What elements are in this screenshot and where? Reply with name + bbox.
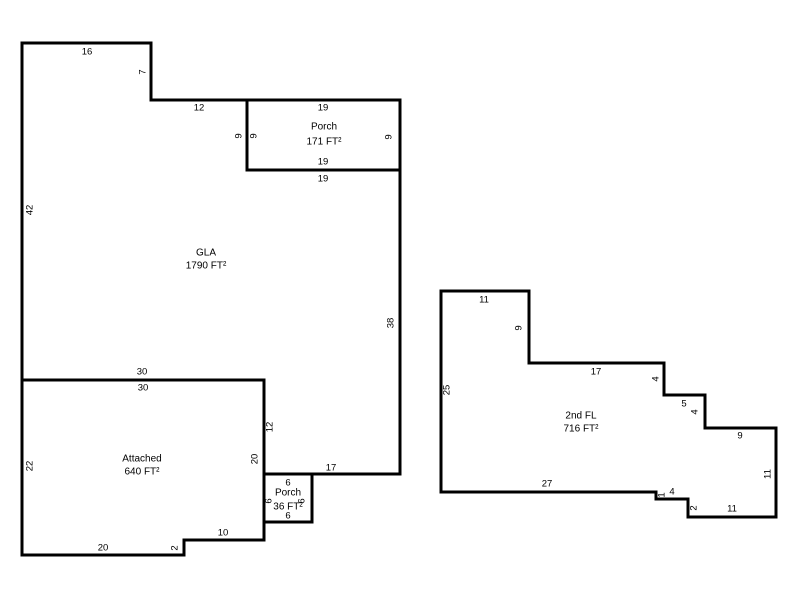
gla-dimension-label: 17 xyxy=(326,463,337,474)
porch-lower-dimension-label: 6 xyxy=(285,478,290,489)
second-floor-dimension-label: 2 xyxy=(689,505,700,510)
second-floor-dimension-label: 25 xyxy=(442,385,453,396)
second-floor-dimension-label: 11 xyxy=(479,295,489,306)
porch-lower-dimension-label: 6 xyxy=(264,498,275,503)
attached-label: 640 FT² xyxy=(124,467,160,478)
porch-lower-dimension-label: 6 xyxy=(285,511,290,522)
gla-dimension-label: 38 xyxy=(386,318,397,329)
gla-dimension-label: 30 xyxy=(137,367,148,378)
second-floor-dimension-label: 4 xyxy=(669,487,674,498)
porch-lower-label: Porch xyxy=(275,488,301,499)
porch-upper-dimension-label: 19 xyxy=(318,157,329,168)
gla-dimension-label: 9 xyxy=(234,133,245,138)
second-floor-label: 2nd FL xyxy=(565,411,597,422)
gla-dimension-label: 16 xyxy=(82,47,93,58)
second-floor-dimension-label: 4 xyxy=(651,376,662,381)
porch-upper-label: Porch xyxy=(311,122,337,133)
second-floor-dimension-label: 4 xyxy=(690,409,701,414)
porch-upper-dimension-label: 19 xyxy=(318,103,329,114)
floorplan-canvas: GLA1790 FT²167129194238301217Porch171 FT… xyxy=(0,0,800,600)
attached-dimension-label: 22 xyxy=(25,461,36,472)
floorplan-sketch-page: GLA1790 FT²167129194238301217Porch171 FT… xyxy=(0,0,800,600)
attached-dimension-label: 20 xyxy=(250,454,261,465)
gla-dimension-label: 42 xyxy=(25,205,36,216)
porch-upper-dimension-label: 9 xyxy=(384,134,395,139)
second-floor-dimension-label: 11 xyxy=(763,469,774,479)
attached-label: Attached xyxy=(122,454,161,465)
second-floor-label: 716 FT² xyxy=(563,424,599,435)
attached-dimension-label: 10 xyxy=(218,528,229,539)
second-floor-dimension-label: 1 xyxy=(657,492,668,497)
second-floor-dimension-label: 11 xyxy=(727,504,737,515)
attached-dimension-label: 20 xyxy=(98,543,109,554)
second-floor-dimension-label: 27 xyxy=(542,479,553,490)
second-floor-dimension-label: 9 xyxy=(737,431,742,442)
porch-upper-label: 171 FT² xyxy=(306,137,342,148)
attached-dimension-label: 2 xyxy=(170,545,181,550)
attached-dimension-label: 30 xyxy=(138,383,149,394)
gla-dimension-label: 7 xyxy=(138,69,149,74)
porch-lower-dimension-label: 6 xyxy=(297,498,308,503)
second-floor-outline xyxy=(441,291,776,517)
gla-dimension-label: 19 xyxy=(318,174,329,185)
second-floor-dimension-label: 5 xyxy=(681,399,686,410)
gla-label: GLA xyxy=(196,248,216,259)
second-floor-dimension-label: 17 xyxy=(591,367,602,378)
porch-upper-dimension-label: 9 xyxy=(249,133,260,138)
gla-dimension-label: 12 xyxy=(194,103,205,114)
gla-label: 1790 FT² xyxy=(186,261,227,272)
gla-dimension-label: 12 xyxy=(265,422,276,433)
second-floor-dimension-label: 9 xyxy=(514,325,525,330)
